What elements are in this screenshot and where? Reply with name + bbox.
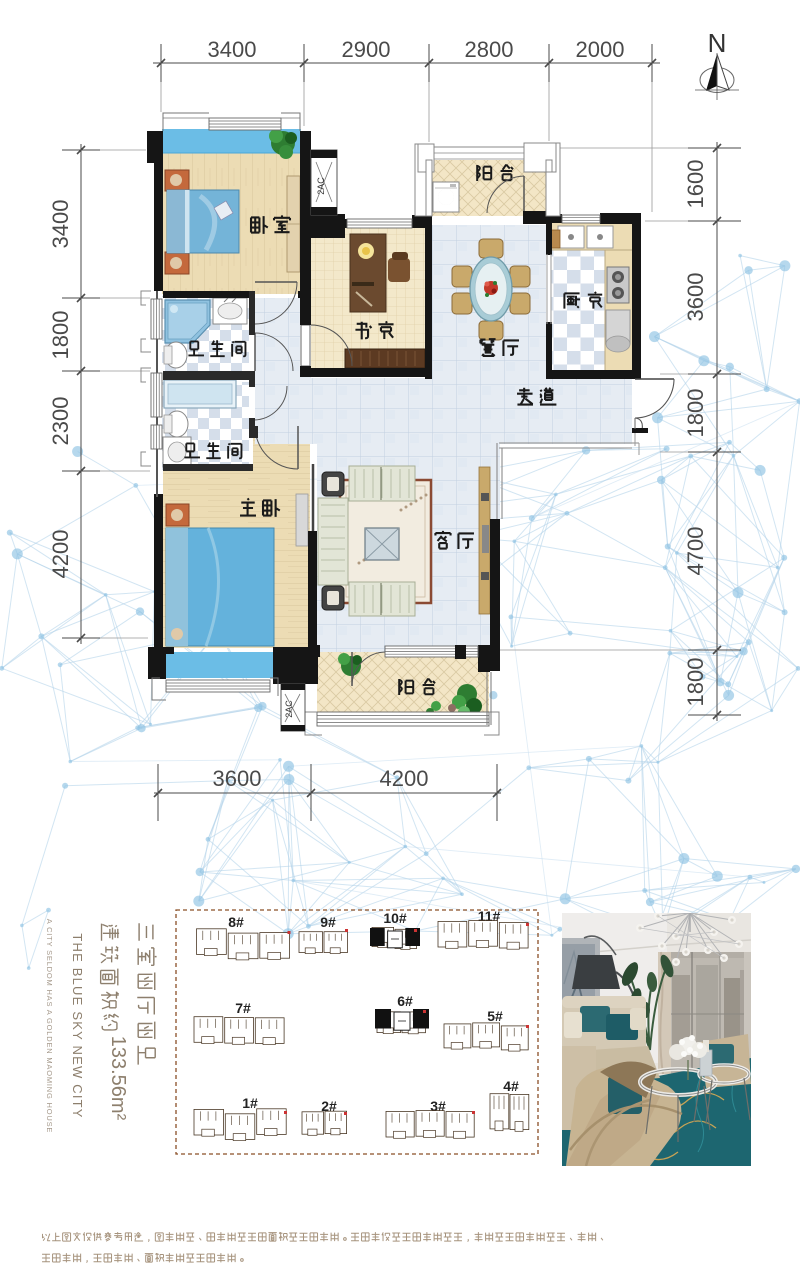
svg-text:A CITY SELDOM HAS A GOLDEN MAO: A CITY SELDOM HAS A GOLDEN MAOMING HOUSE (45, 919, 54, 1133)
svg-text:2800: 2800 (465, 37, 514, 62)
svg-text:4200: 4200 (380, 766, 429, 791)
svg-text:4#: 4# (503, 1078, 519, 1094)
svg-text:4200: 4200 (48, 530, 73, 579)
svg-text:6#: 6# (397, 993, 413, 1009)
svg-text:133.56m²: 133.56m² (107, 1036, 129, 1121)
svg-text:9#: 9# (320, 914, 336, 930)
svg-text:2300: 2300 (48, 397, 73, 446)
svg-text:1800: 1800 (683, 389, 708, 438)
svg-text:2AC: 2AC (316, 177, 326, 195)
svg-text:3400: 3400 (48, 200, 73, 249)
svg-text:1800: 1800 (683, 658, 708, 707)
svg-text:2AC: 2AC (284, 700, 294, 718)
svg-text:3600: 3600 (683, 273, 708, 322)
svg-text:THE BLUE SKY NEW CITY: THE BLUE SKY NEW CITY (70, 933, 85, 1118)
svg-text:4700: 4700 (683, 527, 708, 576)
svg-text:8#: 8# (228, 914, 244, 930)
svg-text:2000: 2000 (576, 37, 625, 62)
svg-text:3400: 3400 (208, 37, 257, 62)
svg-text:5#: 5# (487, 1008, 503, 1024)
svg-text:1800: 1800 (48, 311, 73, 360)
svg-text:3600: 3600 (213, 766, 262, 791)
svg-text:1#: 1# (242, 1095, 258, 1111)
svg-text:2900: 2900 (342, 37, 391, 62)
svg-text:1600: 1600 (683, 160, 708, 209)
svg-text:10#: 10# (383, 910, 407, 926)
svg-text:7#: 7# (235, 1000, 251, 1016)
